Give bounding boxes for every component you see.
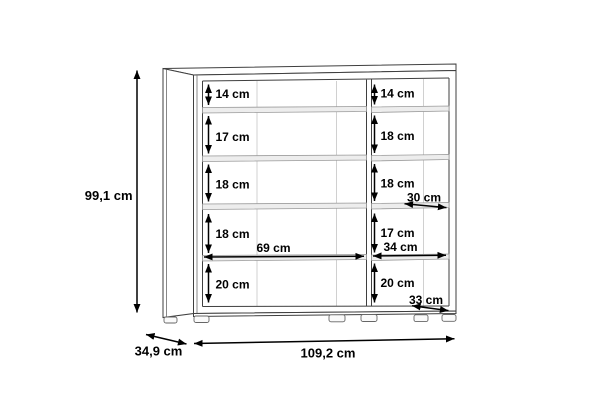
dim-label-left-gap-5: 20 cm xyxy=(216,278,250,292)
dimension-drawing-canvas: 99,1 cm 34,9 cm 109,2 cm 14 cm 17 cm 18 … xyxy=(0,0,600,420)
dim-arrow-overall-width xyxy=(194,339,455,344)
dim-label-left-gap-1: 14 cm xyxy=(216,87,250,101)
cabinet-side-panel xyxy=(163,69,194,318)
dim-label-overall-height: 99,1 cm xyxy=(85,188,133,203)
shelf-left-2 xyxy=(203,155,367,162)
shelf-right-1 xyxy=(372,106,450,113)
shelf-right-2 xyxy=(372,155,450,162)
dim-label-right-gap-1: 14 cm xyxy=(381,87,415,101)
shelf-left-3 xyxy=(203,203,367,210)
dim-label-lower-shelf-depth: 33 cm xyxy=(409,293,443,307)
dim-label-right-gap-2: 18 cm xyxy=(381,129,415,143)
dim-arrow-right-inner-width xyxy=(373,255,446,256)
dim-label-right-gap-3: 18 cm xyxy=(381,177,415,191)
dim-label-right-gap-4: 17 cm xyxy=(381,226,415,240)
cabinet-foot xyxy=(361,315,377,322)
shelf-left-1 xyxy=(203,107,367,114)
dim-arrow-left-inner-width xyxy=(204,256,364,257)
dim-label-right-inner-width: 34 cm xyxy=(383,240,417,254)
furniture-dimension-diagram: 99,1 cm 34,9 cm 109,2 cm 14 cm 17 cm 18 … xyxy=(0,0,600,420)
dim-label-left-gap-3: 18 cm xyxy=(216,178,250,192)
cabinet-feet xyxy=(164,315,456,324)
cabinet-foot xyxy=(414,315,428,322)
cabinet-foot xyxy=(194,316,209,323)
dim-label-right-gap-5: 20 cm xyxy=(381,276,415,290)
shelf-left-4 xyxy=(203,255,367,262)
dim-label-overall-depth: 34,9 cm xyxy=(135,344,183,359)
dim-label-left-inner-width: 69 cm xyxy=(256,241,290,255)
dim-label-left-gap-2: 17 cm xyxy=(216,130,250,144)
cabinet-foot xyxy=(329,315,345,322)
dim-label-upper-shelf-depth: 30 cm xyxy=(407,191,441,205)
cabinet-foot xyxy=(164,317,177,323)
dim-label-overall-width: 109,2 cm xyxy=(301,346,356,361)
cabinet-foot xyxy=(442,315,456,322)
dim-label-left-gap-4: 18 cm xyxy=(216,227,250,241)
